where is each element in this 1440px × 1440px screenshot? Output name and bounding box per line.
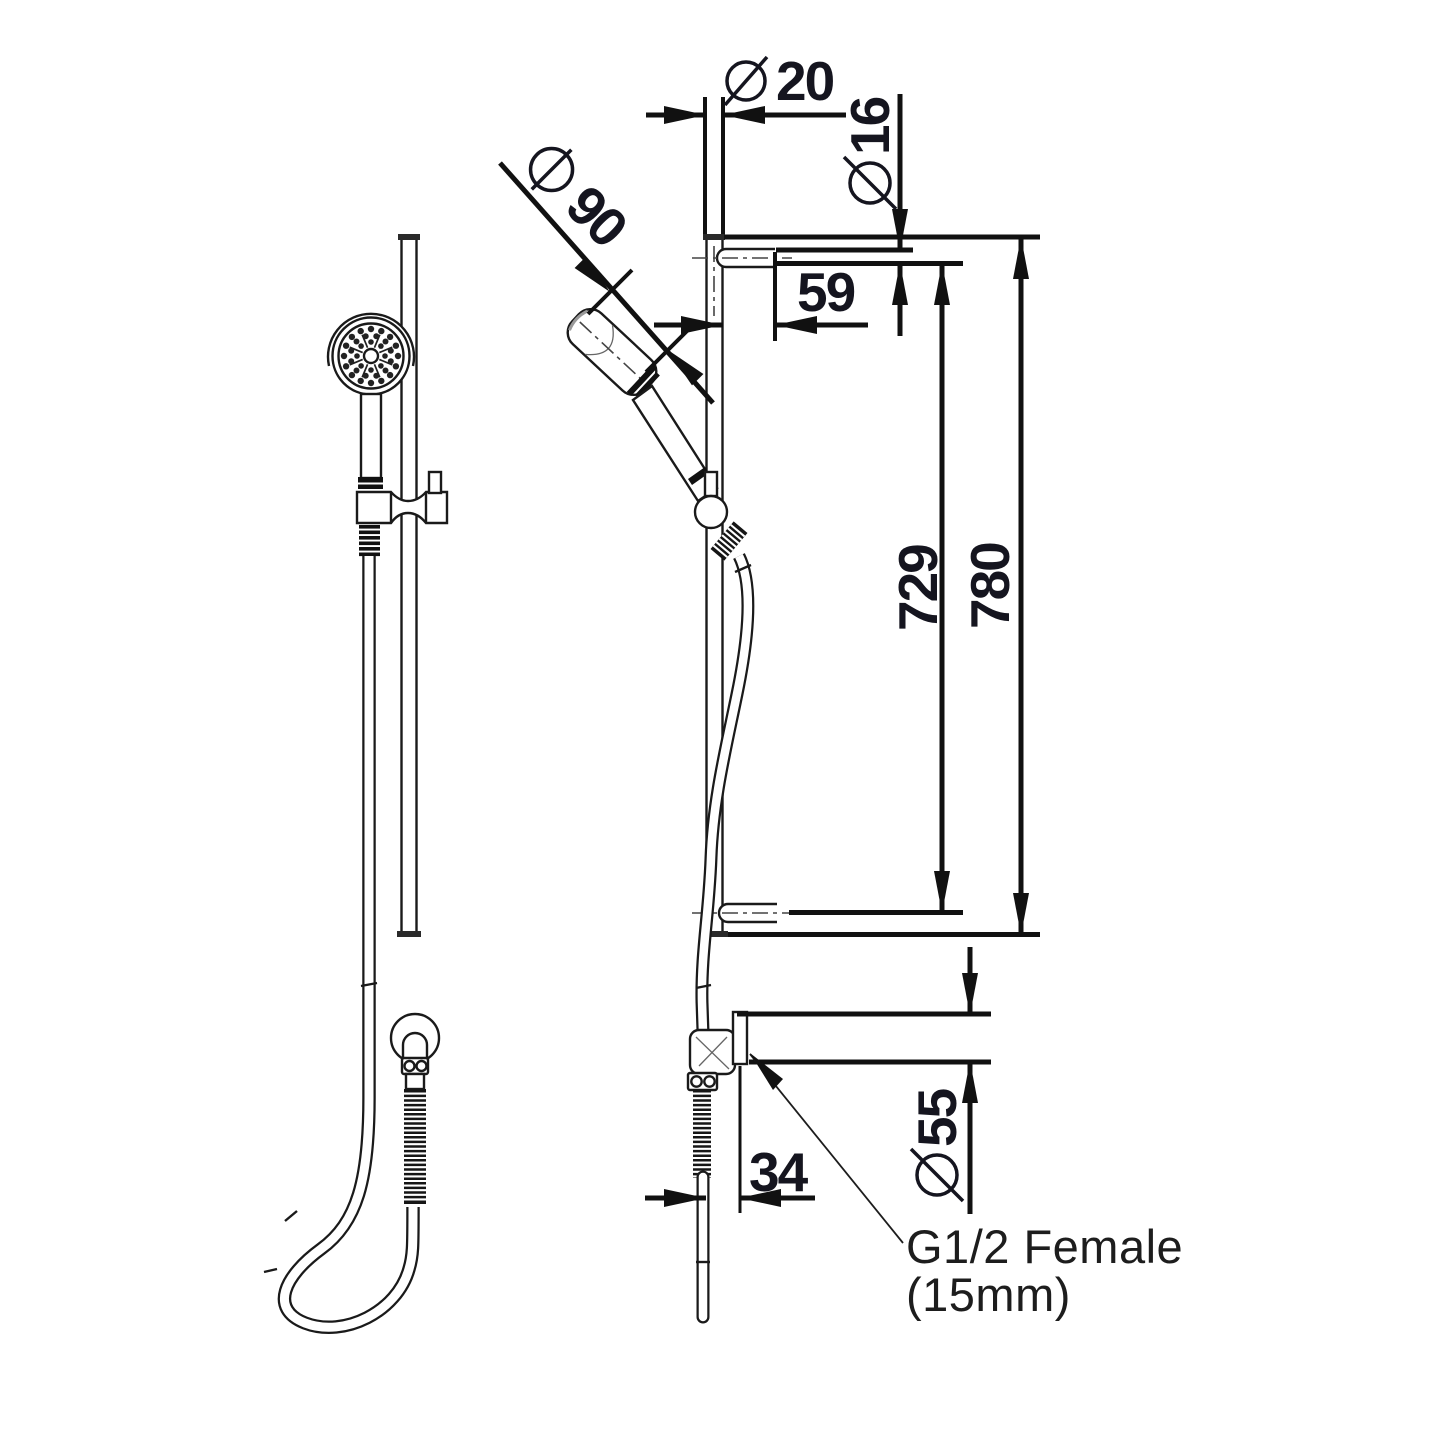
front-handle (358, 394, 383, 496)
dim-bracket-spacing: 729 (887, 263, 950, 913)
diameter-symbol (725, 57, 767, 105)
dim-label-flange-diameter: 55 (906, 1088, 968, 1147)
side-shower-head (561, 303, 664, 403)
front-view (264, 234, 447, 1327)
dim-label-arm-diameter: 16 (839, 97, 901, 155)
diameter-symbol (911, 1149, 963, 1201)
front-wall-outlet (391, 1014, 439, 1204)
front-hose-ribbed-section (404, 1089, 426, 1204)
front-slider-knob (429, 472, 441, 493)
dim-rail-length: 780 (959, 237, 1029, 935)
dim-flange-diameter: 55 (906, 947, 978, 1214)
dim-label-bracket-spacing: 729 (887, 545, 949, 631)
connection-note-line1: G1/2 Female (906, 1220, 1183, 1273)
dim-wall-offset: 59 (654, 261, 868, 334)
dim-outlet-offset: 34 (645, 1141, 815, 1207)
technical-drawing-shower-rail: 20 16 59 (0, 0, 1440, 1440)
side-hose-ribbed-section (693, 1089, 711, 1178)
dim-label-outlet-offset: 34 (749, 1141, 809, 1203)
front-handle-spring (359, 525, 380, 556)
dim-label-handset-diameter: 90 (554, 174, 639, 259)
front-hose (264, 556, 413, 1327)
side-slider-ball (695, 496, 727, 528)
front-rail-bottom-cap (397, 931, 421, 937)
dim-label-wall-offset: 59 (797, 261, 855, 323)
dim-rail-diameter: 20 (646, 50, 846, 124)
connection-note-line2: (15mm) (906, 1268, 1071, 1321)
side-rail-top-cap (703, 234, 725, 240)
dim-label-rail-length: 780 (959, 543, 1021, 629)
diameter-symbol (844, 157, 896, 209)
dimension-layer: 20 16 59 (500, 50, 1183, 1321)
wall-flange (733, 1012, 747, 1064)
dim-label-rail-diameter: 20 (776, 50, 834, 112)
side-slider-knob (705, 472, 717, 496)
front-rail-top-cap (398, 234, 420, 240)
drawing-canvas: 20 16 59 (0, 0, 1440, 1440)
